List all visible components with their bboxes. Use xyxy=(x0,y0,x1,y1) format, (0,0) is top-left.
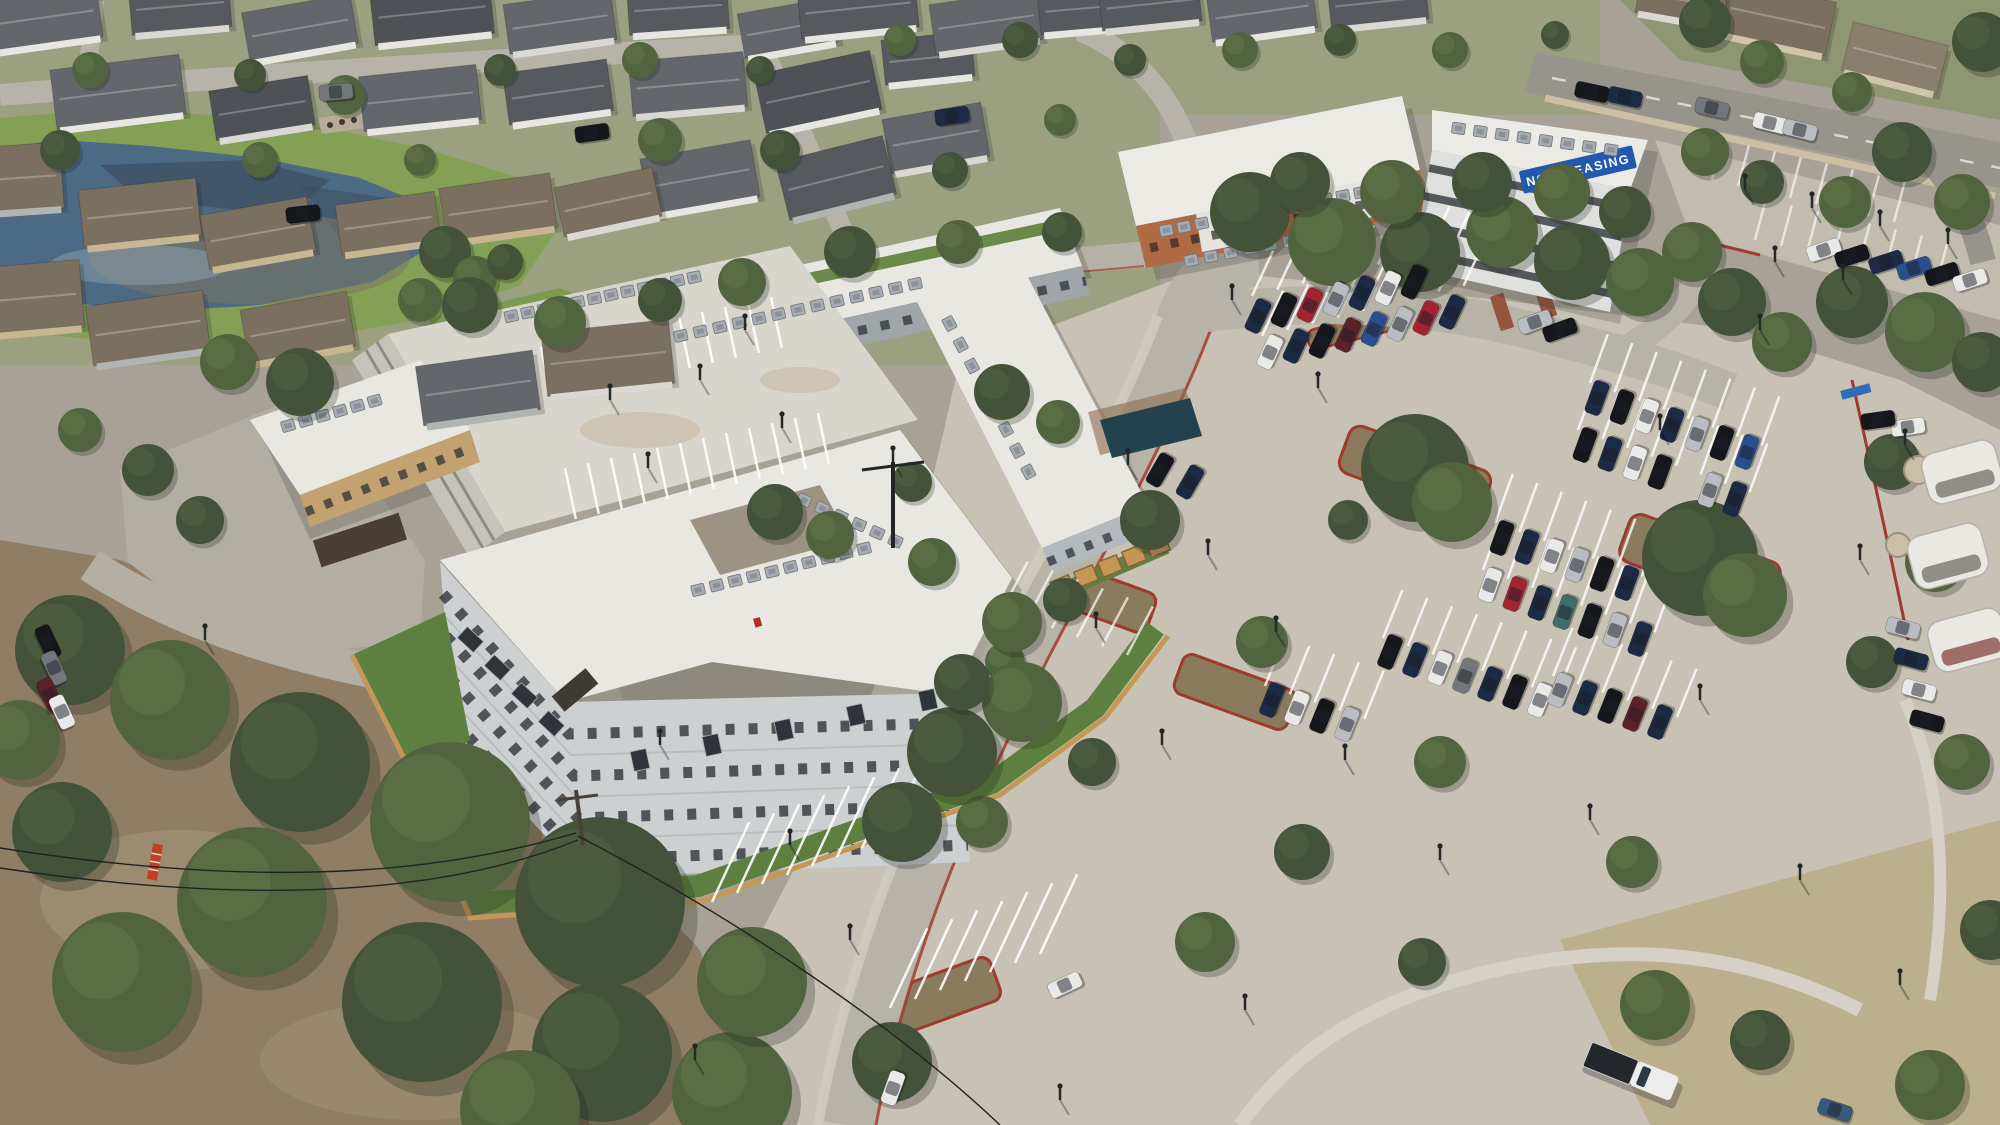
tree-highlight xyxy=(1418,740,1447,769)
tree-highlight xyxy=(1225,35,1245,55)
tree-highlight xyxy=(1538,168,1569,199)
pole-head xyxy=(1273,615,1278,620)
pole-head xyxy=(1772,245,1777,250)
tree-highlight xyxy=(868,788,912,832)
pole-head xyxy=(787,828,792,833)
tree-highlight xyxy=(241,703,318,780)
pole-head xyxy=(697,363,702,368)
hvac-unit-fan xyxy=(1607,147,1615,153)
aerial-scene: NOW LEASING xyxy=(0,0,2000,1125)
tree-highlight xyxy=(1938,738,1969,769)
car-glass xyxy=(584,126,599,141)
car-glass xyxy=(1617,89,1632,104)
tree-highlight xyxy=(528,830,622,924)
culvert-arch xyxy=(327,122,333,128)
pole-head xyxy=(1437,843,1442,848)
tree-highlight xyxy=(763,133,785,155)
pole-head xyxy=(1877,209,1882,214)
tree-highlight xyxy=(1625,975,1664,1014)
tree-highlight xyxy=(1667,227,1700,260)
tree-highlight xyxy=(895,465,917,487)
tree-highlight xyxy=(1435,35,1455,55)
pole-head xyxy=(1242,993,1247,998)
tree-highlight xyxy=(1402,942,1428,968)
hvac-unit-fan xyxy=(1455,125,1463,131)
tree-highlight xyxy=(75,55,95,75)
tree-highlight xyxy=(1703,273,1740,310)
hvac-unit-fan xyxy=(1476,129,1484,135)
tree-highlight xyxy=(1611,253,1648,290)
pole-head xyxy=(1797,863,1802,868)
tree-highlight xyxy=(1877,127,1910,160)
car-glass xyxy=(328,85,342,99)
car xyxy=(285,204,323,226)
car-glass xyxy=(944,109,959,124)
pole-head xyxy=(1757,313,1762,318)
house xyxy=(78,178,206,253)
tree-highlight xyxy=(126,448,155,477)
pole-head xyxy=(1057,1083,1062,1088)
pole-head xyxy=(1587,803,1592,808)
tree-highlight xyxy=(406,146,424,164)
tree-highlight xyxy=(1603,190,1632,219)
pole-head xyxy=(1809,191,1814,196)
pole-head xyxy=(1945,227,1950,232)
tree-highlight xyxy=(63,923,140,1000)
pole-head xyxy=(1902,428,1907,433)
tree-highlight xyxy=(1683,0,1712,29)
tree-highlight xyxy=(641,121,665,145)
tree-highlight xyxy=(1331,503,1353,525)
tree-highlight xyxy=(245,145,265,165)
tree-highlight xyxy=(1743,43,1767,67)
tree-highlight xyxy=(1240,620,1269,649)
tree-highlight xyxy=(935,155,955,175)
tree-highlight xyxy=(1125,495,1158,528)
hvac-unit-fan xyxy=(1498,132,1506,138)
pole-head xyxy=(1840,263,1845,268)
car-glass xyxy=(1900,420,1915,435)
tree-highlight xyxy=(1735,1015,1768,1048)
tree-highlight xyxy=(1278,828,1309,859)
hvac-unit-fan xyxy=(1585,144,1593,150)
tree-highlight xyxy=(20,790,75,845)
tree-highlight xyxy=(938,658,969,689)
tree-highlight xyxy=(1418,468,1462,512)
tree-highlight xyxy=(382,754,470,842)
tree-highlight xyxy=(1326,26,1344,44)
tree-highlight xyxy=(1957,337,1990,370)
tree-highlight xyxy=(423,230,452,259)
hvac-unit-fan xyxy=(1520,135,1528,141)
tree-highlight xyxy=(641,281,665,305)
tree-highlight xyxy=(486,56,504,74)
culvert-arch xyxy=(339,119,345,125)
car-glass xyxy=(1584,84,1599,99)
tree-highlight xyxy=(1543,23,1558,38)
car xyxy=(318,82,355,103)
pole-head xyxy=(1159,728,1164,733)
tree-highlight xyxy=(858,1028,902,1072)
pole-head xyxy=(1125,448,1130,453)
pole-head xyxy=(1093,611,1098,616)
tree-highlight xyxy=(1709,559,1755,605)
tree-highlight xyxy=(188,838,271,921)
car-glass xyxy=(295,207,309,221)
pole-head xyxy=(847,923,852,928)
tree-highlight xyxy=(1965,905,1998,938)
tree-highlight xyxy=(1045,215,1067,237)
tree-highlight xyxy=(914,714,964,764)
tree-highlight xyxy=(1365,165,1400,200)
tree-highlight xyxy=(180,500,206,526)
tree-highlight xyxy=(446,281,477,312)
tree-highlight xyxy=(705,935,766,996)
hvac-unit-fan xyxy=(1542,138,1550,144)
car-glass xyxy=(1870,413,1885,428)
tree-highlight xyxy=(1275,157,1308,190)
tree-highlight xyxy=(912,542,938,568)
deck-stain xyxy=(760,367,840,393)
pole-head xyxy=(607,383,612,388)
tree-highlight xyxy=(1046,581,1070,605)
tree-highlight xyxy=(43,133,65,155)
pole-head xyxy=(1857,543,1862,548)
tree-highlight xyxy=(1005,25,1025,45)
pole-head xyxy=(1229,283,1234,288)
pole-head xyxy=(742,313,747,318)
pole-head xyxy=(890,445,895,450)
pole-head xyxy=(202,623,207,628)
tree-highlight xyxy=(1540,230,1582,272)
pole-head xyxy=(1342,743,1347,748)
tree-highlight xyxy=(1938,178,1969,209)
tree-highlight xyxy=(1957,17,1990,50)
hvac-unit-fan xyxy=(1564,141,1572,147)
deck-stain xyxy=(580,412,700,448)
tree-highlight xyxy=(1835,75,1857,97)
tree-highlight xyxy=(61,411,85,435)
tree-highlight xyxy=(1823,180,1852,209)
tree-highlight xyxy=(1900,1055,1939,1094)
tree-highlight xyxy=(1216,178,1260,222)
house-roof xyxy=(0,259,85,336)
tree-highlight xyxy=(401,281,425,305)
tree-highlight xyxy=(1850,640,1879,669)
tree-highlight xyxy=(204,338,235,369)
pole-head xyxy=(1205,538,1210,543)
tree-highlight xyxy=(469,1059,535,1125)
tree-highlight xyxy=(751,488,782,519)
tree-highlight xyxy=(939,223,963,247)
aerial-photo: NOW LEASING xyxy=(0,0,2000,1125)
pole-head xyxy=(692,1043,697,1048)
stone-landscape-bed xyxy=(1886,533,1910,557)
tree-highlight xyxy=(625,45,645,65)
tree-highlight xyxy=(119,649,185,715)
pole-head xyxy=(779,411,784,416)
tree-highlight xyxy=(1610,840,1639,869)
pole-head xyxy=(645,451,650,456)
tree-highlight xyxy=(1821,271,1861,311)
tree-highlight xyxy=(236,61,254,79)
tree-highlight xyxy=(828,230,857,259)
tree-highlight xyxy=(810,515,836,541)
tree-highlight xyxy=(886,26,904,44)
tree-highlight xyxy=(1046,106,1064,124)
tree-highlight xyxy=(271,353,308,390)
tree-highlight xyxy=(748,58,763,73)
tree-highlight xyxy=(538,300,567,329)
tree-highlight xyxy=(354,934,442,1022)
tree-highlight xyxy=(987,597,1020,630)
tree-highlight xyxy=(1651,509,1715,573)
house xyxy=(358,64,486,136)
tree-highlight xyxy=(1457,157,1490,190)
tree-highlight xyxy=(1868,438,1899,469)
pole-head xyxy=(657,728,662,733)
house xyxy=(0,259,89,341)
tree-highlight xyxy=(1116,46,1134,64)
tree-highlight xyxy=(543,993,620,1070)
tree-highlight xyxy=(490,247,510,267)
tree-highlight xyxy=(988,668,1032,712)
tree-highlight xyxy=(1685,132,1711,158)
tree-highlight xyxy=(1369,422,1428,481)
pole-head xyxy=(1657,413,1662,418)
tree-highlight xyxy=(1039,403,1063,427)
tree-highlight xyxy=(978,368,1009,399)
pole-head xyxy=(1315,371,1320,376)
tree-highlight xyxy=(681,1041,747,1107)
pole-head xyxy=(1897,968,1902,973)
pole-head xyxy=(1697,683,1702,688)
tree-highlight xyxy=(1891,298,1935,342)
tree-highlight xyxy=(1180,917,1213,950)
tree-highlight xyxy=(722,262,748,288)
pole-head xyxy=(1742,173,1747,178)
tree-highlight xyxy=(1072,742,1098,768)
